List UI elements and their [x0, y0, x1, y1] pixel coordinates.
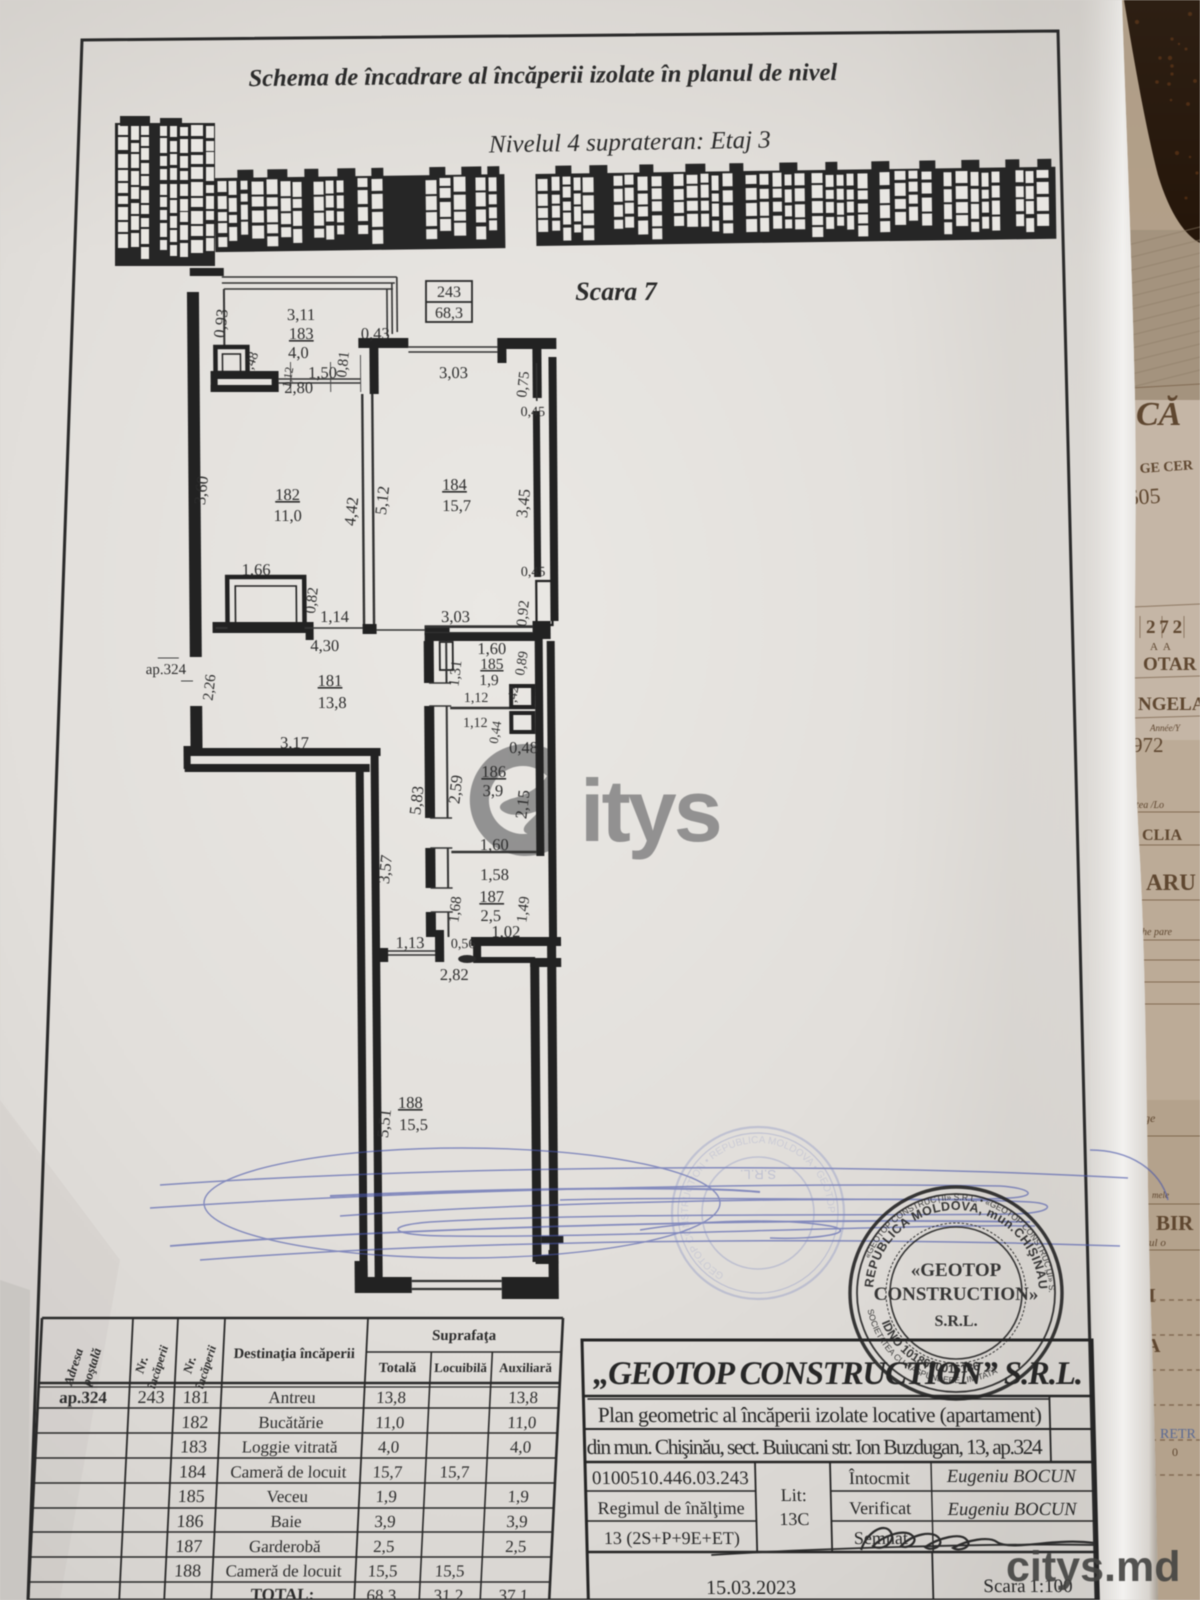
svg-text:188: 188 — [174, 1561, 202, 1581]
svg-text:2,82: 2,82 — [440, 965, 469, 984]
svg-text:0,56: 0,56 — [451, 937, 476, 952]
svg-text:1,12: 1,12 — [463, 716, 488, 731]
svg-text:1,12: 1,12 — [464, 691, 489, 706]
svg-text:186: 186 — [481, 762, 506, 781]
svg-text:0,45: 0,45 — [521, 565, 546, 580]
svg-text:1,14: 1,14 — [320, 607, 349, 626]
svg-text:0,93: 0,93 — [210, 308, 232, 339]
svg-text:4,0: 4,0 — [378, 1438, 400, 1457]
svg-text:11,0: 11,0 — [375, 1413, 405, 1432]
svg-text:A A: A A — [1150, 641, 1171, 653]
svg-text:tea /Lo: tea /Lo — [1136, 800, 1164, 811]
svg-text:3,45: 3,45 — [512, 488, 534, 519]
svg-text:1,9: 1,9 — [479, 672, 499, 689]
svg-text:citys.md: citys.md — [1006, 1543, 1180, 1591]
svg-text:3,11: 3,11 — [287, 305, 315, 324]
svg-text:4,0: 4,0 — [288, 343, 309, 362]
svg-text:Plan geometric al încăperii iz: Plan geometric al încăperii izolate loca… — [598, 1403, 1043, 1427]
svg-text:NGELA: NGELA — [1138, 694, 1200, 715]
svg-text:Regimul de înălţime: Regimul de înălţime — [597, 1498, 744, 1518]
svg-text:ap.324: ap.324 — [59, 1388, 108, 1407]
svg-text:0,48: 0,48 — [509, 738, 538, 757]
svg-text:68,3: 68,3 — [435, 305, 463, 322]
svg-text:2,15: 2,15 — [511, 789, 533, 820]
svg-text:11,0: 11,0 — [273, 506, 301, 525]
svg-text:0,82: 0,82 — [303, 587, 322, 615]
svg-text:Veceu: Veceu — [266, 1487, 309, 1506]
svg-text:3,03: 3,03 — [439, 363, 468, 382]
svg-text:15,5: 15,5 — [399, 1115, 428, 1134]
svg-text:2 7 2: 2 7 2 — [1146, 617, 1182, 638]
svg-text:3,9: 3,9 — [374, 1512, 396, 1531]
svg-text:13,8: 13,8 — [508, 1388, 539, 1407]
svg-text:OTAR: OTAR — [1143, 654, 1197, 675]
svg-text:2,80: 2,80 — [284, 378, 313, 397]
svg-text:37,1: 37,1 — [498, 1586, 529, 1600]
svg-text:5,83: 5,83 — [405, 785, 427, 816]
svg-text:0100510.446.03.243: 0100510.446.03.243 — [592, 1468, 749, 1489]
svg-text:Scara 7: Scara 7 — [575, 277, 658, 306]
svg-text:15,7: 15,7 — [439, 1462, 470, 1481]
svg-text:Destinaţia încăperii: Destinaţia încăperii — [233, 1346, 355, 1362]
svg-text:Semnat: Semnat — [854, 1528, 908, 1548]
svg-text:15,7: 15,7 — [372, 1462, 403, 1481]
svg-text:Verificat: Verificat — [849, 1498, 911, 1518]
svg-text:187: 187 — [479, 887, 504, 906]
svg-text:0,43: 0,43 — [361, 324, 390, 343]
svg-text:itys: itys — [580, 761, 720, 860]
svg-text:„GEOTOP CONSTRUCTION” S.R.L.: „GEOTOP CONSTRUCTION” S.R.L. — [592, 1356, 1083, 1392]
svg-text:Garderobă: Garderobă — [249, 1537, 322, 1556]
svg-text:11,0: 11,0 — [507, 1413, 537, 1432]
svg-text:Întocmit: Întocmit — [849, 1467, 911, 1488]
svg-text:1,02: 1,02 — [491, 922, 520, 941]
svg-text:1,66: 1,66 — [242, 560, 271, 579]
svg-text:Cameră de locuit: Cameră de locuit — [230, 1462, 347, 1481]
svg-text:Suprafaţa: Suprafaţa — [432, 1328, 497, 1344]
svg-text:184: 184 — [442, 475, 467, 494]
svg-text:3,9: 3,9 — [506, 1512, 528, 1531]
svg-text:187: 187 — [175, 1536, 203, 1556]
svg-text:Année/Y: Année/Y — [1149, 723, 1181, 733]
svg-text:ARU: ARU — [1146, 870, 1196, 895]
svg-text:5,51: 5,51 — [373, 1108, 395, 1139]
svg-text:1,31: 1,31 — [447, 660, 466, 688]
svg-text:3,9: 3,9 — [482, 781, 503, 800]
svg-text:4,30: 4,30 — [310, 636, 339, 655]
svg-text:13 (2S+P+9E+ET): 13 (2S+P+9E+ET) — [604, 1528, 740, 1549]
svg-text:13C: 13C — [779, 1509, 809, 1529]
svg-text:Lit:: Lit: — [781, 1485, 807, 1505]
svg-text:1,9: 1,9 — [507, 1487, 529, 1506]
svg-text:182: 182 — [275, 485, 300, 504]
svg-text:184: 184 — [179, 1461, 207, 1481]
svg-text:186: 186 — [176, 1511, 204, 1531]
svg-text:182: 182 — [181, 1412, 209, 1432]
svg-text:972: 972 — [1132, 733, 1164, 757]
svg-text:13,8: 13,8 — [376, 1388, 407, 1407]
svg-text:2,59: 2,59 — [444, 774, 466, 805]
svg-text:1,9: 1,9 — [375, 1487, 397, 1506]
svg-text:CONSTRUCTION»: CONSTRUCTION» — [874, 1284, 1039, 1305]
svg-text:15,5: 15,5 — [434, 1562, 465, 1581]
svg-text:Locuibilă: Locuibilă — [434, 1360, 488, 1375]
svg-text:15.03.2023: 15.03.2023 — [706, 1577, 797, 1599]
svg-text:68,3: 68,3 — [366, 1586, 397, 1600]
svg-text:Baie: Baie — [270, 1512, 302, 1531]
svg-text:Nivelul 4 suprateran: Etaj 3: Nivelul 4 suprateran: Etaj 3 — [488, 127, 771, 159]
svg-text:3,03: 3,03 — [441, 607, 470, 626]
svg-text:TOTAL:: TOTAL: — [250, 1585, 315, 1600]
svg-text:1,49: 1,49 — [514, 896, 533, 924]
svg-text:«GEOTOP: «GEOTOP — [911, 1260, 1002, 1281]
svg-text:1,58: 1,58 — [480, 865, 509, 884]
svg-text:din mun. Chişinău, sect. Buiuc: din mun. Chişinău, sect. Buiucani str. I… — [586, 1435, 1043, 1459]
svg-text:he pare: he pare — [1142, 927, 1172, 938]
svg-text:Eugeniu BOCUN: Eugeniu BOCUN — [946, 1500, 1078, 1520]
svg-text:243: 243 — [437, 284, 461, 301]
svg-text:S.R.L.: S.R.L. — [740, 1167, 776, 1182]
svg-text:13,8: 13,8 — [318, 693, 347, 712]
svg-text:183: 183 — [180, 1437, 208, 1457]
svg-text:Auxiliară: Auxiliară — [499, 1360, 553, 1375]
svg-text:0,92: 0,92 — [514, 600, 533, 628]
svg-text:S.R.L.: S.R.L. — [934, 1313, 977, 1330]
svg-text:2,5: 2,5 — [505, 1537, 527, 1556]
svg-text:185: 185 — [480, 656, 504, 673]
svg-text:0,75: 0,75 — [514, 371, 533, 399]
svg-text:1,13: 1,13 — [396, 933, 425, 952]
svg-text:4,0: 4,0 — [510, 1438, 532, 1457]
svg-text:4,42: 4,42 — [340, 496, 362, 527]
svg-text:ap.324: ap.324 — [146, 662, 187, 678]
svg-text:3,57: 3,57 — [374, 854, 396, 885]
svg-text:1,60: 1,60 — [480, 835, 509, 854]
svg-text:3,60: 3,60 — [190, 475, 212, 506]
svg-text:3,17: 3,17 — [280, 733, 309, 752]
svg-text:2,5: 2,5 — [373, 1537, 395, 1556]
svg-text:Loggie vitrată: Loggie vitrată — [241, 1438, 338, 1457]
svg-text:CĂ: CĂ — [1136, 395, 1181, 433]
svg-text:Cameră de locuit: Cameră de locuit — [225, 1562, 342, 1581]
svg-text:Bucătărie: Bucătărie — [258, 1413, 324, 1432]
svg-text:15,5: 15,5 — [367, 1562, 398, 1581]
svg-text:0: 0 — [1172, 1445, 1178, 1459]
svg-text:15,7: 15,7 — [442, 496, 471, 515]
svg-text:188: 188 — [398, 1093, 423, 1112]
svg-text:181: 181 — [182, 1387, 210, 1407]
svg-text:Eugeniu BOCUN: Eugeniu BOCUN — [946, 1467, 1078, 1487]
svg-text:BIR: BIR — [1156, 1211, 1194, 1235]
svg-text:CLIA: CLIA — [1142, 827, 1182, 844]
svg-text:0,45: 0,45 — [521, 405, 546, 420]
svg-text:,42: ,42 — [504, 685, 521, 704]
svg-text:243: 243 — [137, 1387, 165, 1407]
svg-text:Totală: Totală — [378, 1361, 416, 1376]
svg-text:2,26: 2,26 — [201, 673, 220, 702]
svg-text:5,12: 5,12 — [371, 485, 393, 516]
svg-text:Antreu: Antreu — [268, 1388, 317, 1407]
svg-text:31,2: 31,2 — [433, 1586, 464, 1600]
svg-text:185: 185 — [177, 1486, 205, 1506]
svg-text:183: 183 — [289, 324, 314, 343]
svg-text:181: 181 — [318, 671, 343, 690]
svg-text:1,68: 1,68 — [446, 896, 465, 924]
